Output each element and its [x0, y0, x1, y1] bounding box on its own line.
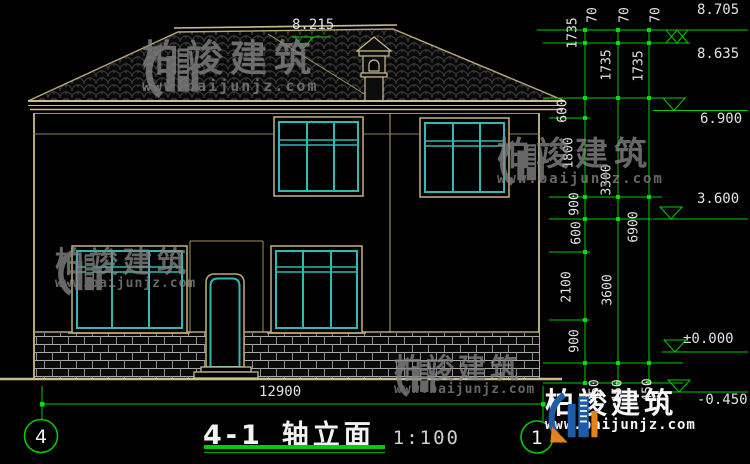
dim-600: 600	[571, 221, 584, 244]
dim-450: 450	[589, 379, 602, 402]
overall-width-dim: 12900	[259, 385, 301, 399]
entry-door	[206, 274, 244, 367]
title-underline-thin	[204, 452, 385, 453]
level-ridge-top: 8.705	[697, 3, 739, 17]
dim-1800: 1800	[563, 137, 576, 168]
title-underline	[204, 445, 385, 449]
dim-900: 900	[569, 192, 582, 215]
level-eave: 6.900	[700, 112, 742, 126]
level-grade: -0.450	[697, 393, 748, 407]
dim-1735: 1735	[567, 17, 580, 48]
dim-3300: 3300	[601, 164, 614, 195]
dim-1735: 1735	[601, 49, 614, 80]
hip-roof	[28, 25, 565, 101]
level-floor2: 3.600	[697, 192, 739, 206]
window-1f-right	[267, 246, 366, 333]
ridge-height-label: 8.215	[292, 18, 334, 32]
eave-band	[28, 101, 565, 114]
dim-450: 450	[642, 378, 655, 401]
entry-steps	[194, 367, 258, 378]
title-scale: 1:100	[393, 427, 460, 449]
level-ridge: 8.635	[697, 47, 739, 61]
dim-70: 70	[619, 7, 632, 23]
dim-70: 70	[587, 7, 600, 23]
window-2f-left	[274, 117, 363, 196]
window-2f-right	[420, 118, 509, 197]
window-1f-left	[68, 246, 190, 333]
axis-number-right: 1	[531, 427, 543, 449]
dim-6900: 6900	[628, 211, 641, 242]
dim-3600: 3600	[602, 274, 615, 305]
ridge-cap-line	[174, 25, 397, 28]
elevation-drawing-canvas: 8.705 8.635 6.900 3.600 ±0.000 -0.450 8.…	[0, 0, 750, 464]
level-ground-floor: ±0.000	[683, 332, 734, 346]
brick-plinth	[35, 333, 539, 378]
dim-450: 450	[612, 379, 625, 402]
dim-900: 900	[569, 329, 582, 352]
dim-2100: 2100	[561, 271, 574, 302]
axis-number-left: 4	[35, 426, 47, 448]
dim-1735: 1735	[633, 50, 646, 81]
dim-70: 70	[650, 7, 663, 23]
dim-600: 600	[557, 99, 570, 122]
